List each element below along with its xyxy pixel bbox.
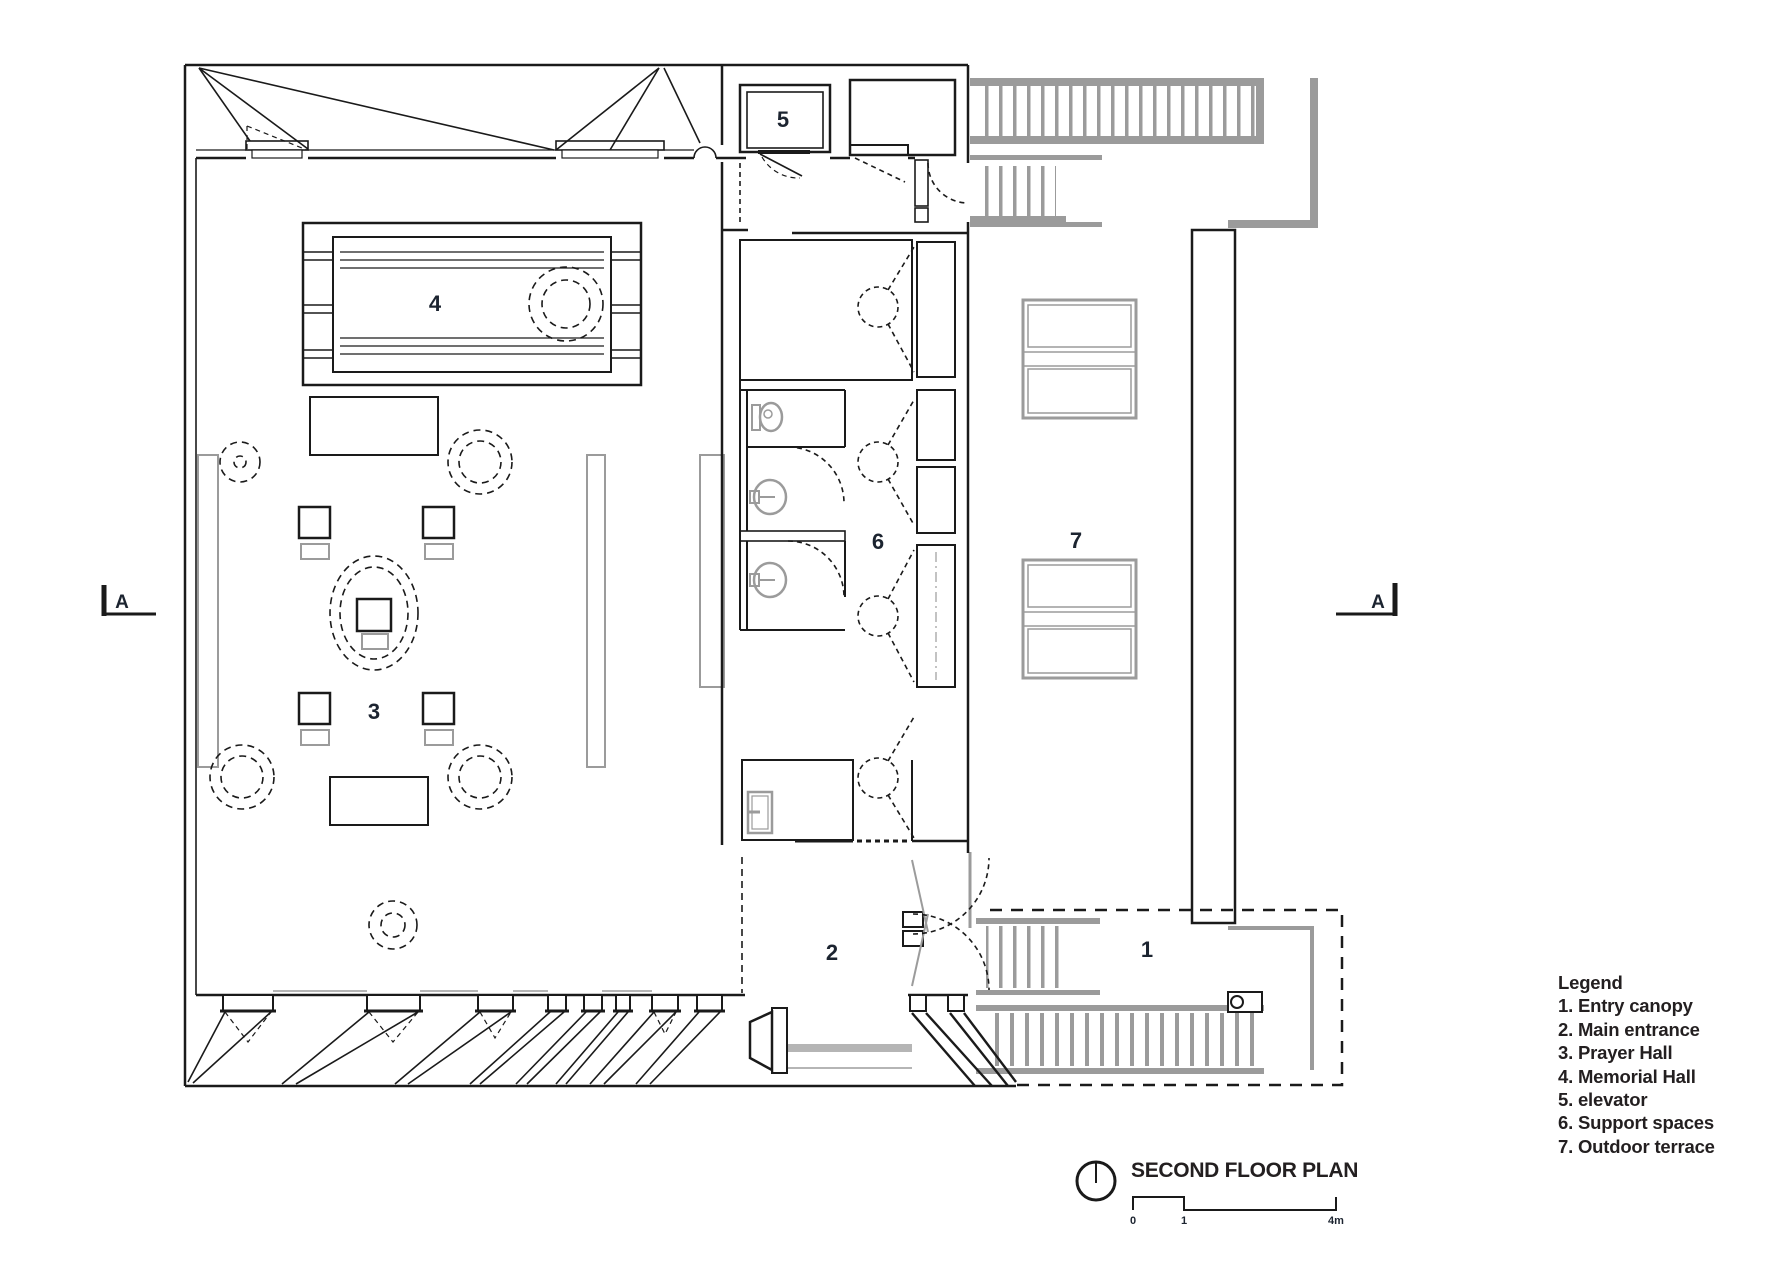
main-entrance [742, 857, 989, 995]
floor-plan-sheet: A A 0 1 4m 1 2 3 4 5 6 7 Legend 1. Entry… [0, 0, 1776, 1278]
support-spaces [740, 240, 968, 841]
terrace-benches [1023, 300, 1136, 678]
room-label-prayer-hall: 3 [368, 699, 380, 724]
room-label-memorial-hall: 4 [429, 291, 442, 316]
section-label-left: A [115, 592, 129, 613]
legend-item-3: 3. Prayer Hall [1558, 1041, 1715, 1064]
prayer-hall [196, 397, 745, 995]
section-marker-right: A [1336, 583, 1397, 616]
section-marker-left: A [104, 585, 156, 616]
scale-label-1: 1 [1181, 1215, 1187, 1227]
legend-item-5: 5. elevator [1558, 1088, 1715, 1111]
room-label-outdoor-terrace: 7 [1070, 528, 1082, 553]
room-label-elevator: 5 [777, 107, 789, 132]
legend-item-6: 6. Support spaces [1558, 1111, 1715, 1134]
legend-item-1: 1. Entry canopy [1558, 994, 1715, 1017]
room-label-main-entrance: 2 [826, 940, 838, 965]
scale-label-4m: 4m [1328, 1215, 1344, 1227]
hall-screens [198, 455, 724, 767]
room-label-support-spaces: 6 [872, 529, 884, 554]
scale-bar: 0 1 4m [1130, 1197, 1344, 1227]
scale-label-0: 0 [1130, 1215, 1136, 1227]
room-label-entry-canopy: 1 [1141, 937, 1153, 962]
legend-item-2: 2. Main entrance [1558, 1018, 1715, 1041]
drawing-title: SECOND FLOOR PLAN [1131, 1159, 1358, 1183]
south-glazing-band [188, 995, 1016, 1086]
legend-item-7: 7. Outdoor terrace [1558, 1135, 1715, 1158]
floor-plan-drawing: A A 0 1 4m 1 2 3 4 5 6 7 [0, 0, 1776, 1278]
terrace-upper-stair [970, 78, 1318, 228]
entry-canopy-stairs [970, 852, 1312, 1074]
north-arrow-icon [1077, 1162, 1115, 1200]
memorial-hall [303, 223, 641, 385]
legend-item-4: 4. Memorial Hall [1558, 1065, 1715, 1088]
roof-band-top [196, 68, 722, 158]
section-label-right: A [1371, 592, 1385, 613]
legend-title: Legend [1558, 971, 1715, 994]
outdoor-terrace [1192, 230, 1235, 923]
legend: Legend 1. Entry canopy 2. Main entrance … [1558, 971, 1715, 1158]
